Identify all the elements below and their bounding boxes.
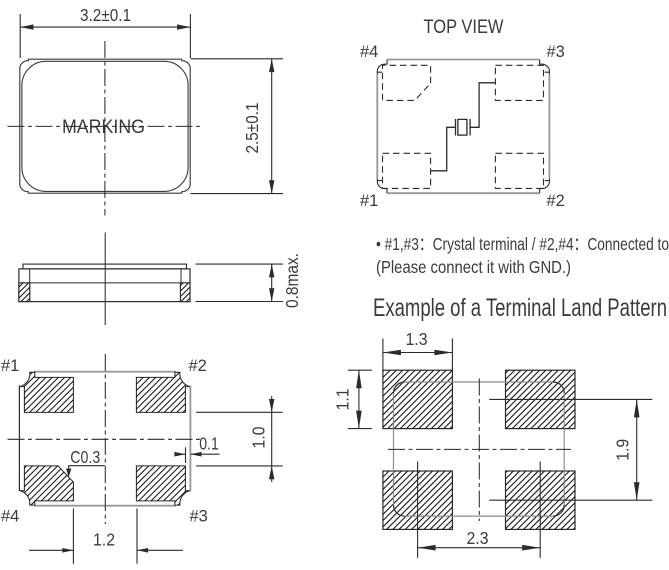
svg-text:1.0: 1.0: [249, 426, 269, 448]
svg-text:• #1,#3：Crystal terminal / #2,: • #1,#3：Crystal terminal / #2,#4：Connect…: [376, 234, 669, 254]
svg-text:#2: #2: [547, 192, 565, 210]
svg-text:MARKING: MARKING: [62, 117, 145, 138]
svg-text:1.3: 1.3: [406, 329, 428, 349]
svg-text:1.2: 1.2: [93, 530, 115, 550]
svg-text:2.5±0.1: 2.5±0.1: [242, 103, 262, 154]
svg-text:TOP VIEW: TOP VIEW: [424, 16, 504, 38]
svg-text:Example of a Terminal Land Pat: Example of a Terminal Land Pattern: [373, 294, 667, 322]
svg-text:C0.3: C0.3: [70, 447, 100, 467]
svg-text:1.1: 1.1: [333, 388, 353, 410]
svg-text:#4: #4: [360, 43, 378, 61]
svg-text:0.1: 0.1: [199, 434, 219, 454]
svg-text:1.9: 1.9: [613, 439, 633, 461]
svg-text:#1: #1: [360, 192, 378, 210]
svg-text:#3: #3: [190, 508, 208, 526]
svg-text:(Please connect it with GND.): (Please connect it with GND.): [376, 257, 571, 277]
svg-text:0.8max.: 0.8max.: [282, 253, 302, 308]
svg-text:2.3: 2.3: [467, 528, 489, 548]
svg-text:#2: #2: [189, 357, 207, 375]
svg-text:#1: #1: [1, 357, 19, 375]
svg-text:3.2±0.1: 3.2±0.1: [80, 5, 131, 25]
svg-text:#4: #4: [1, 508, 19, 526]
svg-text:#3: #3: [547, 43, 565, 61]
